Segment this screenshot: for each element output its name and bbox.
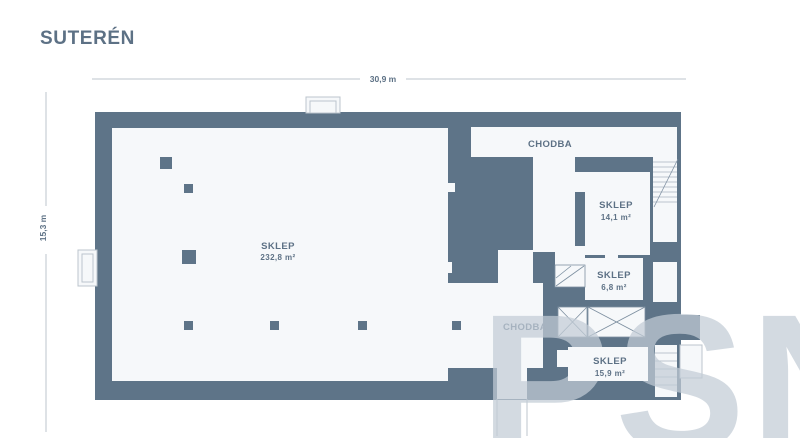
wall-niche [442, 262, 452, 273]
wall-niche [448, 183, 455, 192]
niche [557, 350, 568, 367]
room-area-cellar-141: 14,1 m² [601, 213, 631, 222]
dimension-width-label: 30,9 m [370, 74, 397, 84]
dimension-height-label: 15,3 m [38, 214, 48, 241]
mid-corridor-floor [533, 157, 575, 252]
hall-top-floor [471, 127, 677, 157]
room-label-hall-top: CHODBA [528, 139, 572, 150]
room-area-cellar-159: 15,9 m² [595, 369, 625, 378]
window-icon [306, 97, 340, 113]
stairwell-floor [653, 157, 677, 242]
door-recess [575, 172, 585, 192]
room-label-main-cellar: SKLEP [261, 241, 295, 252]
room-area-main-cellar: 232,8 m² [260, 253, 295, 262]
dimension-width: 30,9 m [92, 70, 686, 84]
landing-floor [555, 246, 585, 265]
window-icon [78, 250, 97, 286]
room-label-cellar-141: SKLEP [599, 200, 633, 211]
door-gap [605, 252, 618, 258]
dimension-height: 15,3 m [38, 92, 53, 432]
floor-plan: 30,9 m 15,3 m [0, 0, 800, 438]
room-label-cellar-159: SKLEP [593, 356, 627, 367]
